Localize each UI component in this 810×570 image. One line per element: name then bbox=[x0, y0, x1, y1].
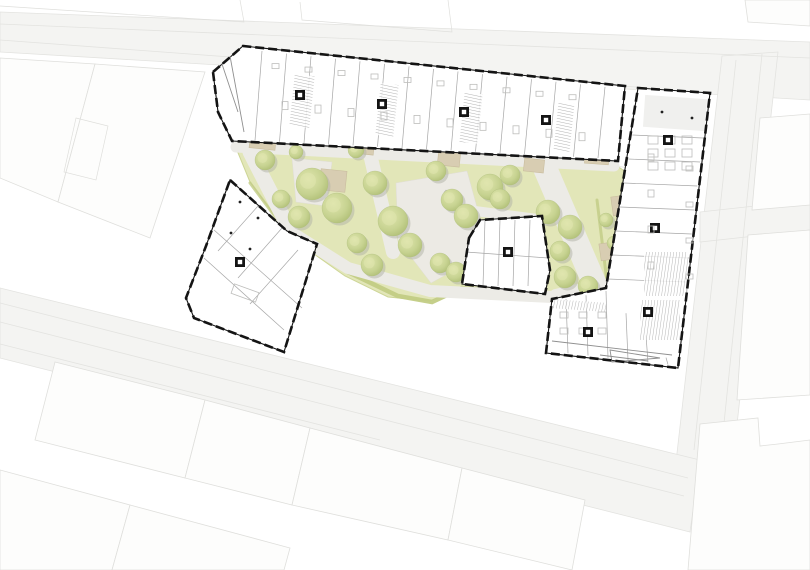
stair-core-hole bbox=[646, 310, 650, 314]
column-dot bbox=[691, 117, 694, 120]
stair-core-hole bbox=[586, 330, 590, 334]
east-bike-storage-1 bbox=[644, 252, 688, 296]
stair-core-hole bbox=[238, 260, 242, 264]
context-parcel-s6 bbox=[112, 505, 290, 570]
terrace bbox=[523, 158, 544, 173]
context-parcel-e3 bbox=[688, 418, 810, 570]
site-plan-page bbox=[0, 0, 810, 570]
stair-core-hole bbox=[506, 250, 510, 254]
east-bike-storage-2 bbox=[640, 300, 680, 340]
stair-core-hole bbox=[380, 102, 384, 106]
stair-core-hole bbox=[666, 138, 670, 142]
context-parcel-ne bbox=[745, 0, 810, 26]
column-dot bbox=[257, 217, 260, 220]
stair-core-hole bbox=[544, 118, 548, 122]
column-dot bbox=[249, 248, 252, 251]
stair-core-hole bbox=[653, 226, 657, 230]
context-parcel-e1 bbox=[752, 114, 810, 210]
stair-core-hole bbox=[462, 110, 466, 114]
column-dot bbox=[661, 111, 664, 114]
context-parcel-s5 bbox=[0, 470, 130, 570]
column-dot bbox=[239, 201, 242, 204]
stair-core-hole bbox=[298, 93, 302, 97]
context-parcel-e2 bbox=[737, 230, 810, 400]
column-dot bbox=[230, 232, 233, 235]
site-plan-canvas bbox=[0, 0, 810, 570]
east-wing-hall bbox=[643, 95, 707, 131]
